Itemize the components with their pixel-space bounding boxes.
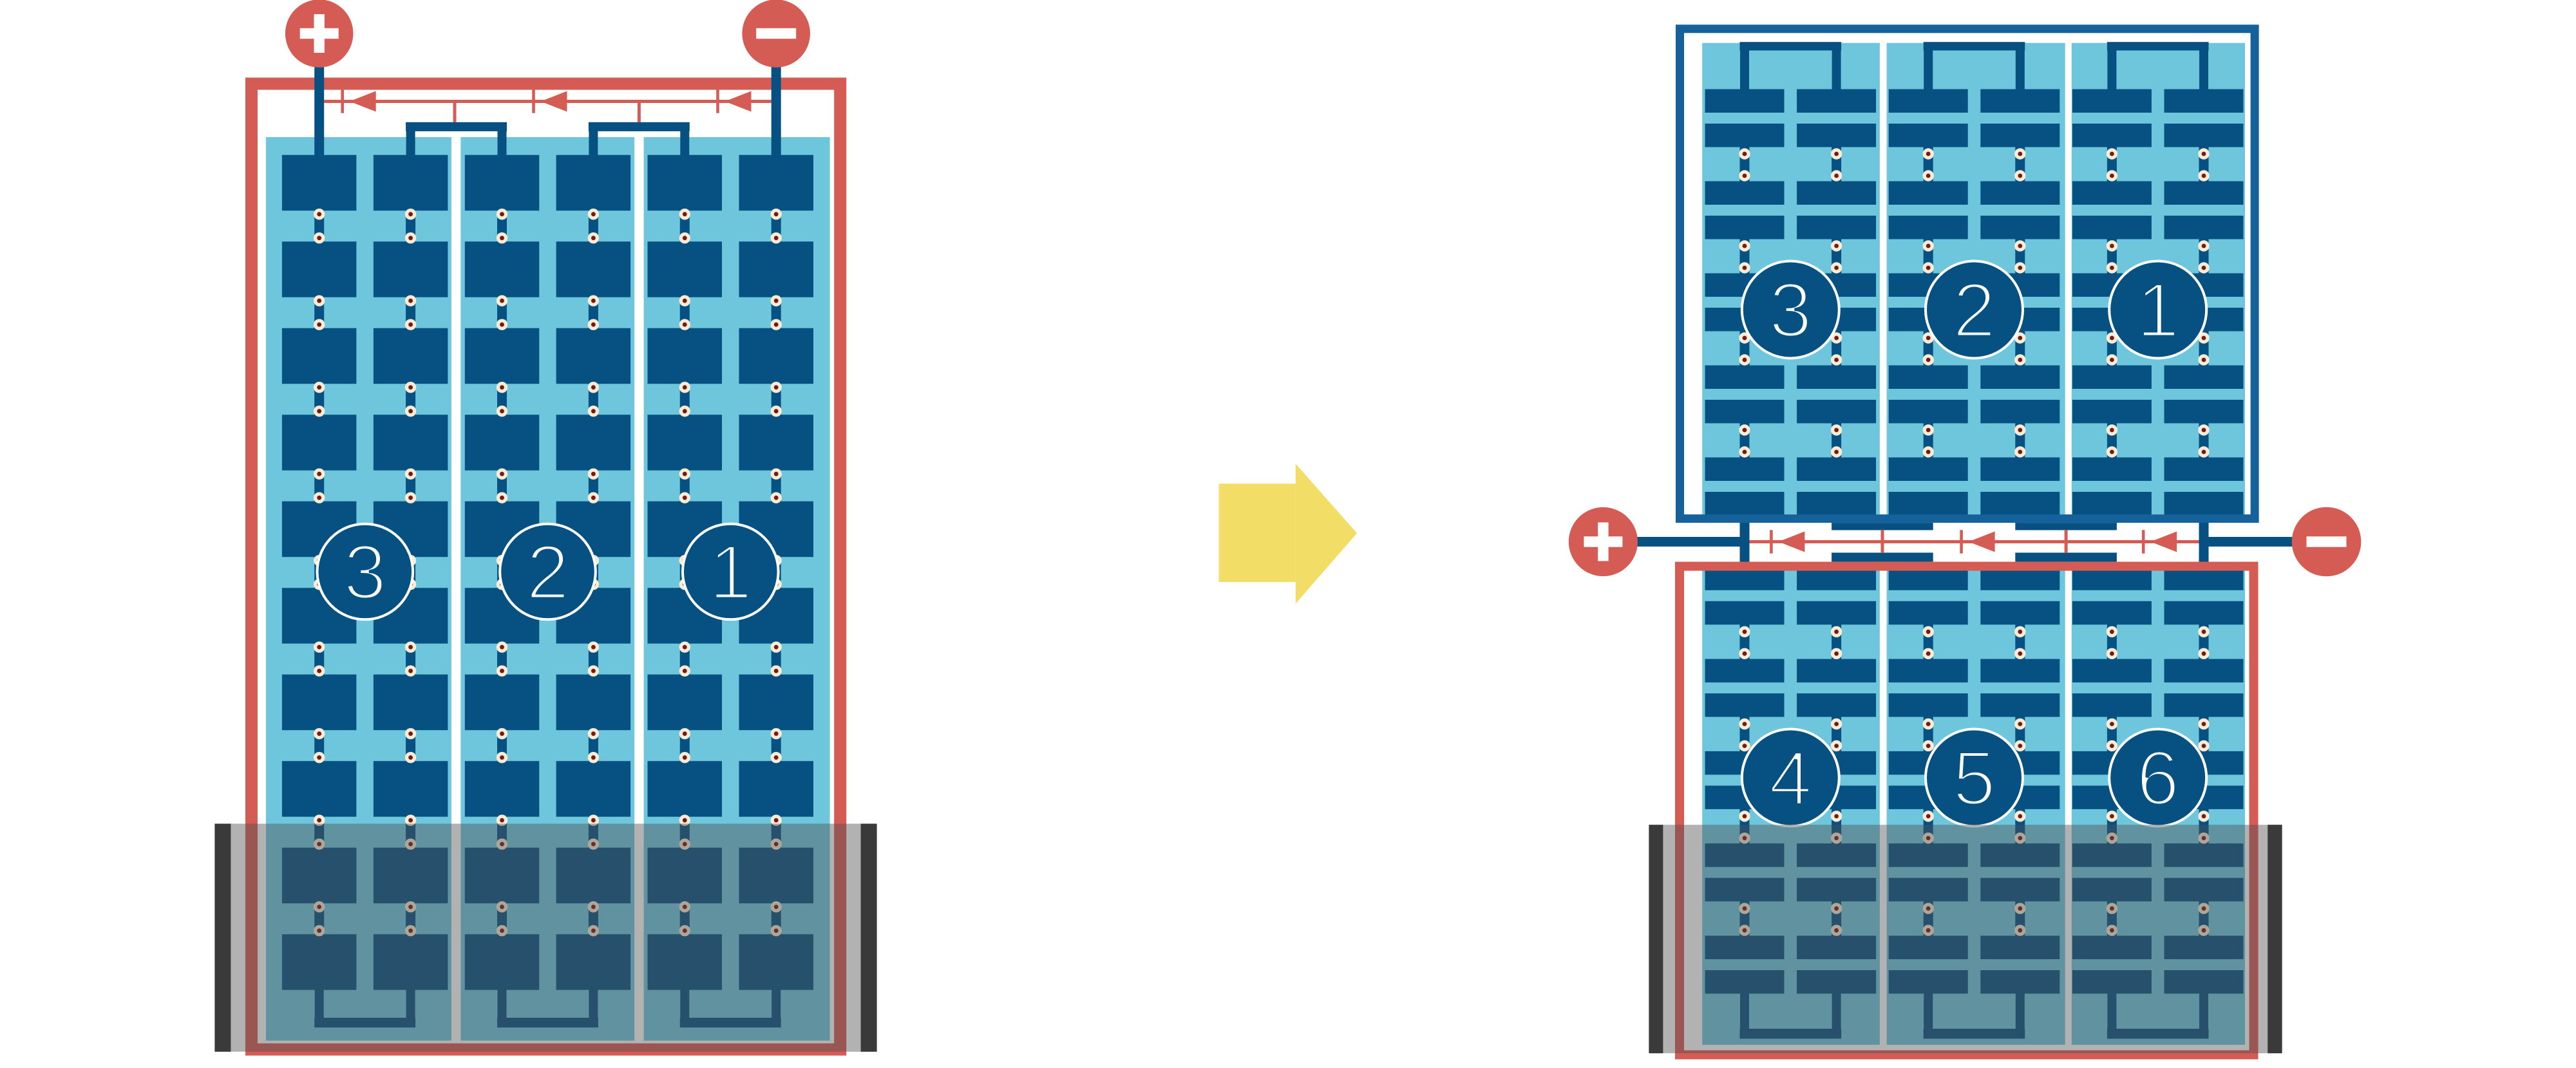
svg-text:3: 3 xyxy=(343,529,386,615)
svg-text:4: 4 xyxy=(1769,735,1812,821)
svg-text:1: 1 xyxy=(2136,267,2179,353)
svg-text:2: 2 xyxy=(526,529,569,615)
svg-text:2: 2 xyxy=(1953,267,1996,353)
svg-text:3: 3 xyxy=(1769,267,1812,353)
svg-text:6: 6 xyxy=(2136,735,2179,821)
svg-text:1: 1 xyxy=(709,529,752,615)
svg-text:5: 5 xyxy=(1953,735,1996,821)
